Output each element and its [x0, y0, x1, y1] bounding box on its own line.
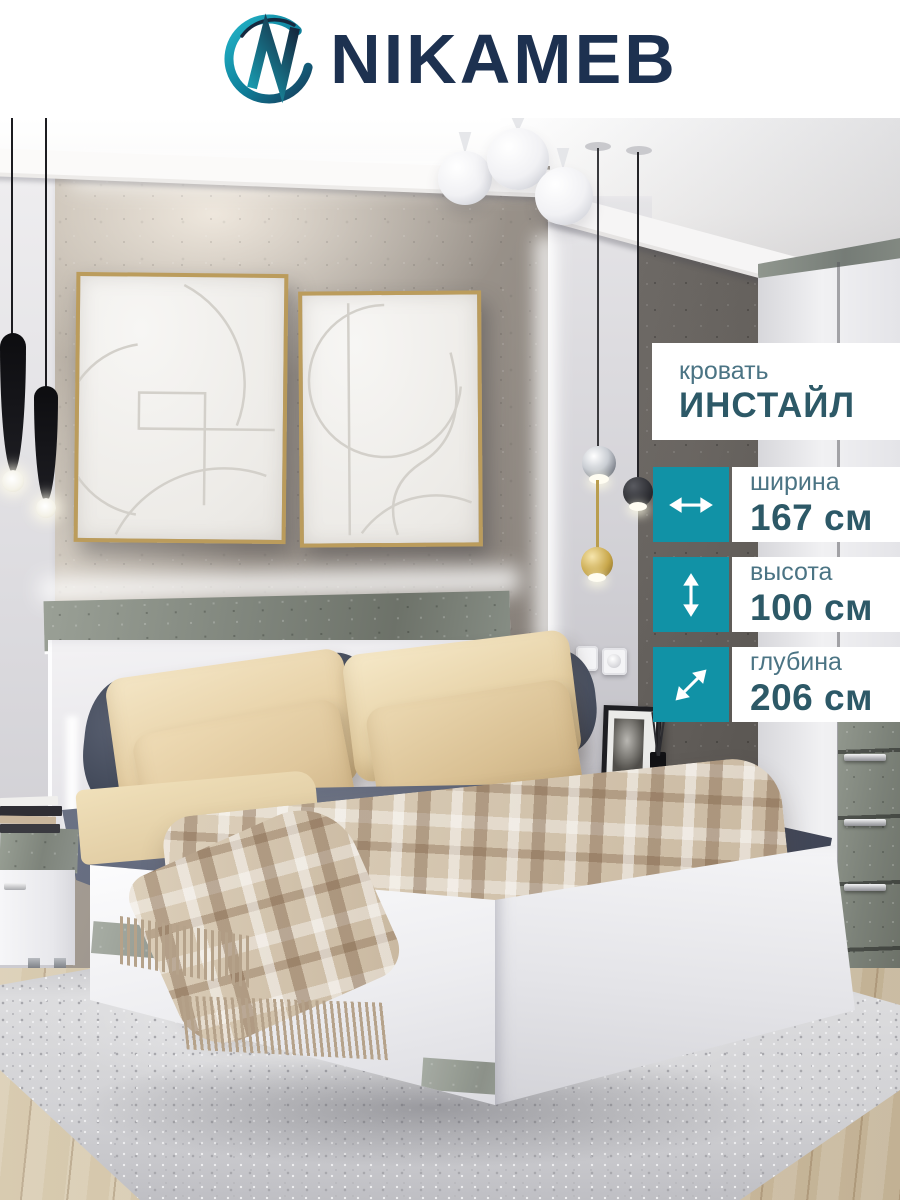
brass-rod [596, 480, 599, 550]
brand-header: NIKAMEB [0, 0, 900, 118]
wall-art-left [74, 272, 289, 544]
white-sphere-lamp [438, 151, 492, 205]
brand-name: NIKAMEB [330, 24, 678, 94]
dimension-value: 167 см [750, 497, 900, 540]
width-arrow-icon [653, 467, 729, 542]
nightstand [0, 870, 75, 965]
wall-outlet [602, 648, 627, 675]
white-sphere-lamp [535, 167, 593, 225]
nightstand-top [0, 827, 79, 874]
book [0, 806, 62, 816]
wall-art-right [298, 290, 483, 547]
dimension-label: ширина [750, 469, 900, 497]
book [0, 824, 60, 833]
pendant-cable [11, 118, 13, 336]
dimension-info: глубина 206 см [732, 647, 900, 722]
dimension-label: глубина [750, 649, 900, 677]
pendant-light [589, 474, 609, 484]
dimension-value: 206 см [750, 677, 900, 720]
dimension-height: высота 100 см [653, 557, 900, 632]
dimension-info: высота 100 см [732, 557, 900, 632]
depth-arrow-icon [653, 647, 729, 722]
product-name: ИНСТАЙЛ [679, 386, 900, 426]
nightstand-foot [28, 958, 40, 968]
pendant-light [588, 573, 606, 582]
dimension-value: 100 см [750, 587, 900, 630]
height-arrow-icon [653, 557, 729, 632]
pendant-cable [597, 148, 599, 446]
product-title-card: кровать ИНСТАЙЛ [652, 343, 900, 440]
nikameb-logo-icon [222, 12, 316, 106]
dimension-info: ширина 167 см [732, 467, 900, 542]
dimension-depth: глубина 206 см [653, 647, 900, 722]
dimension-label: высота [750, 559, 900, 587]
pendant-canopy [626, 146, 652, 155]
dimension-width: ширина 167 см [653, 467, 900, 542]
pendant-cable [45, 118, 47, 388]
nightstand-handle [4, 883, 26, 890]
pendant-cable [637, 152, 639, 477]
pendant-bulb [2, 470, 24, 492]
drawer-handle [844, 819, 886, 826]
drawer-handle [844, 754, 886, 761]
brand-logo: NIKAMEB [222, 12, 678, 106]
pendant-light [629, 502, 647, 511]
nightstand-foot [54, 958, 66, 968]
product-category: кровать [679, 357, 900, 386]
drawer-handle [844, 884, 886, 891]
pendant-bulb [36, 498, 56, 518]
wardrobe-drawers [838, 688, 900, 978]
